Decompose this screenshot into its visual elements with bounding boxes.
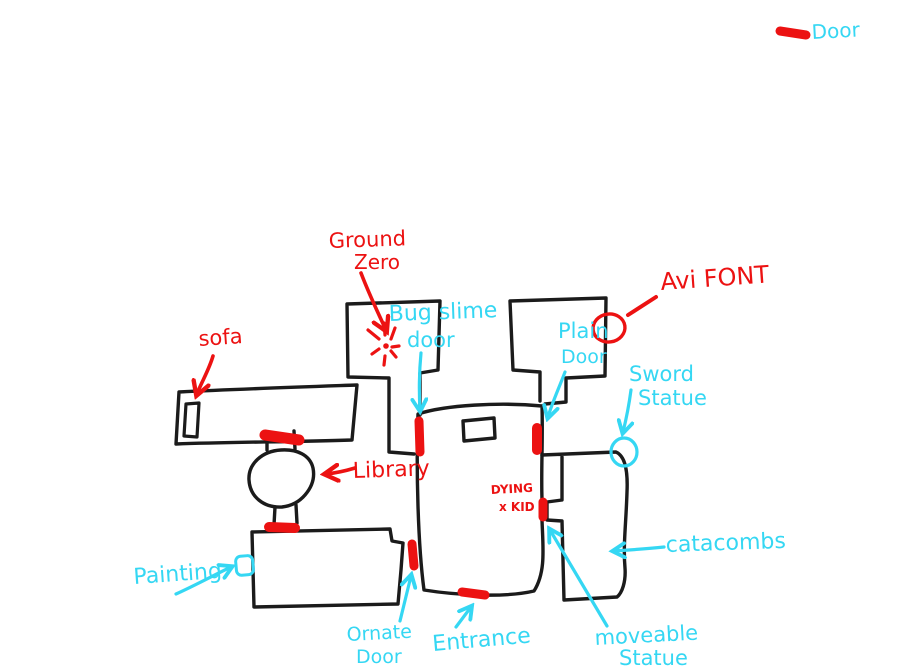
door-entrance [462,592,485,595]
room-outlines [176,298,627,607]
legend-door-marker [780,31,806,35]
door-library-painting-room [269,527,295,528]
bug-slime-label-line2: door [407,328,455,352]
door-bug-slime [419,421,420,452]
door-corridor-library [265,435,299,440]
room-library [249,450,314,507]
legend-door-label: Door [811,17,861,44]
whiteboard-canvas[interactable]: Door Ground Zero Bug slime door Avi FONT… [0,0,900,666]
painting-marker [235,555,254,575]
plain-door-label-line2: Door [561,346,607,368]
catacombs-pointer-line [614,547,664,551]
bug-slime-label-line1: Bug slime [388,298,497,327]
door-ornate [412,544,414,566]
sword-statue-label-line1: Sword [629,362,694,386]
ground-zero-label-line2: Zero [354,250,400,274]
entrance-label: Entrance [431,623,531,656]
ground-zero-starburst-icon [368,323,399,365]
catacombs-label: catacombs [665,529,786,558]
ground-zero-label-line1: Ground [328,226,406,253]
painting-label: Painting [133,559,223,590]
ornate-door-label-line1: Ornate [346,621,412,646]
room-catacombs [542,452,627,600]
dying-kid-label-line1: DYING [490,481,533,497]
room-painting [252,529,403,607]
library-arrow [326,468,355,474]
bug-slime-arrow [419,353,421,410]
avi-font-label: Avi FONT [659,260,770,296]
cyan-annotations [176,353,664,627]
sofa-arrow [197,356,213,394]
moveable-statue-arrow [550,530,607,626]
entrance-arrow [456,607,471,627]
sword-statue-label-line2: Statue [638,386,707,410]
sofa-label: sofa [198,324,244,351]
map-sketch: Door Ground Zero Bug slime door Avi FONT… [0,0,900,666]
starburst-center-dot [383,343,389,349]
plain-door-arrow [548,372,565,417]
ornate-door-label-line2: Door [356,646,402,666]
ornate-door-arrow [400,576,411,621]
sofa-marker [184,403,199,437]
plain-door-label-line1: Plain [558,319,609,343]
table-marker [463,418,495,441]
dying-kid-label-line2: x KID [499,500,535,514]
text-labels: Door Ground Zero Bug slime door Avi FONT… [133,17,861,666]
moveable-statue-label-line2: Statue [619,646,688,666]
avi-font-pointer-line [628,297,656,315]
sword-statue-arrow [623,390,631,432]
library-label: Library [352,456,430,484]
